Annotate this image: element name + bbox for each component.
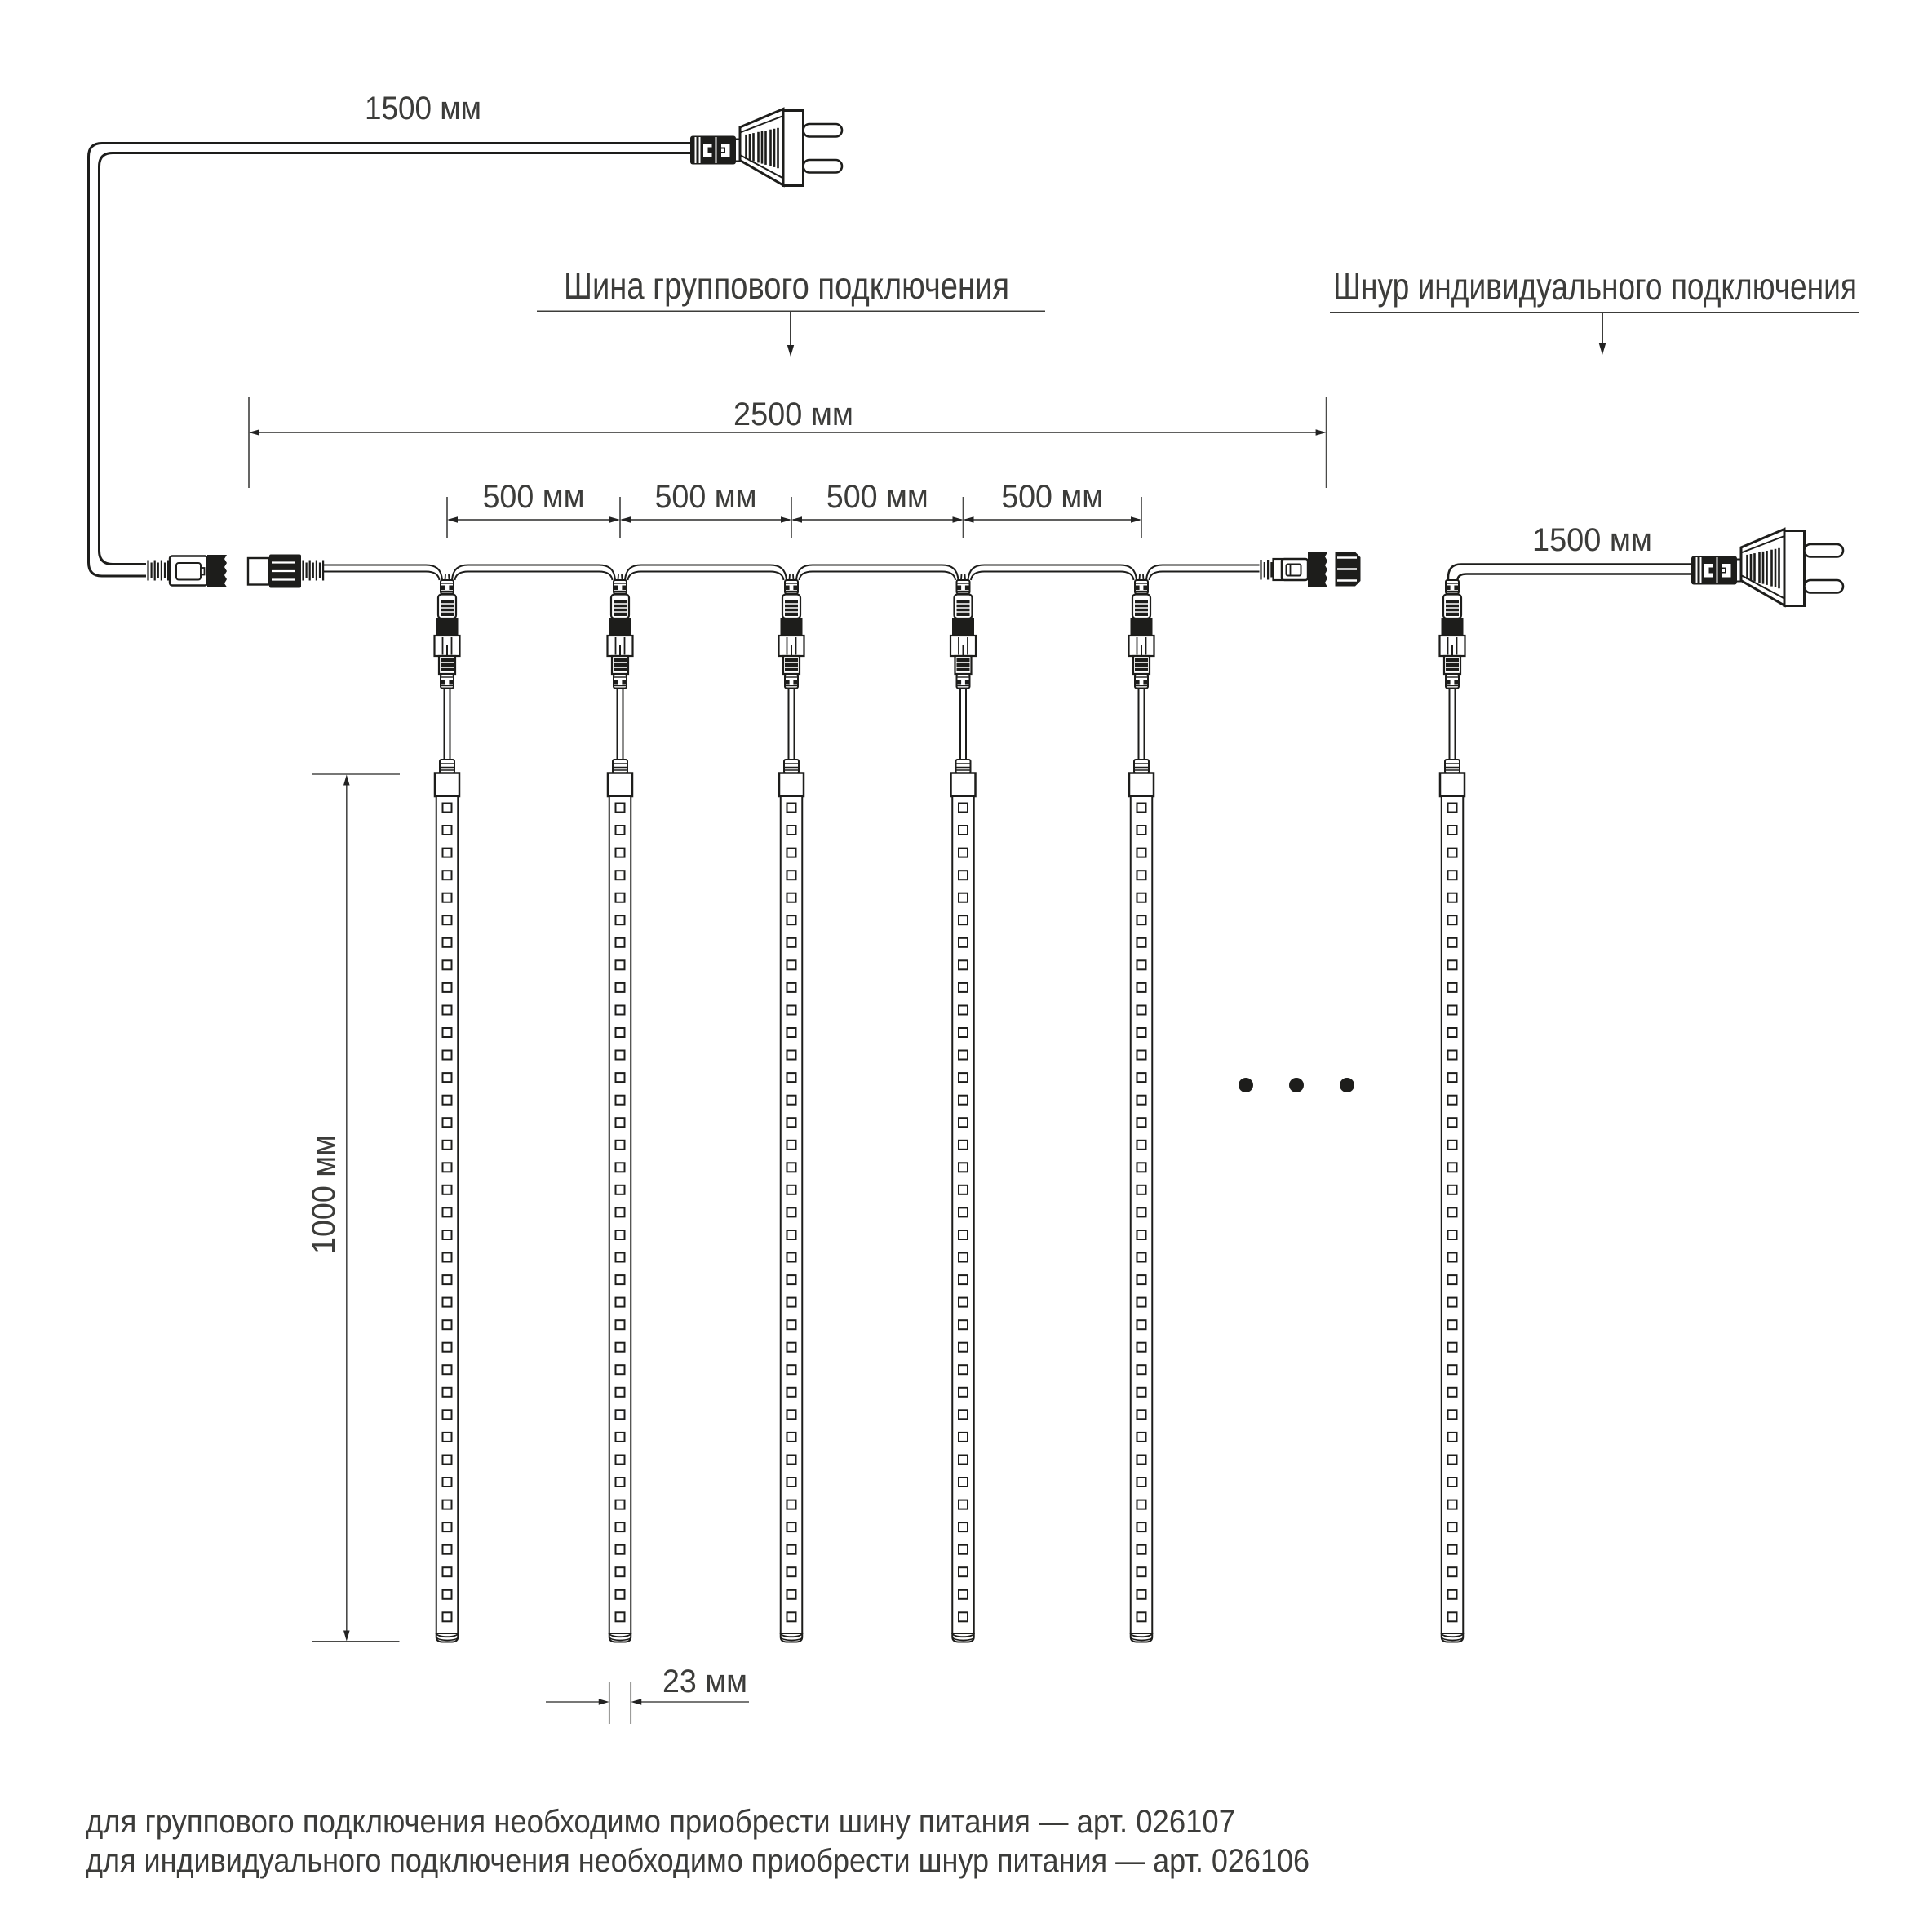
svg-text:500 мм: 500 мм: [1001, 479, 1103, 515]
svg-text:500 мм: 500 мм: [483, 479, 585, 515]
svg-text:500 мм: 500 мм: [655, 479, 757, 515]
svg-text:для индивидуального подключени: для индивидуального подключения необходи…: [86, 1843, 1309, 1879]
svg-text:1500 мм: 1500 мм: [365, 91, 481, 126]
svg-text:1000 мм: 1000 мм: [306, 1135, 342, 1254]
svg-text:2500 мм: 2500 мм: [733, 397, 853, 432]
svg-text:Шина группового подключения: Шина группового подключения: [564, 264, 1009, 307]
svg-text:500 мм: 500 мм: [826, 479, 928, 515]
svg-text:1500 мм: 1500 мм: [1532, 522, 1652, 558]
svg-text:Шнур индивидуального подключен: Шнур индивидуального подключения: [1333, 265, 1857, 308]
svg-text:для группового подключения нео: для группового подключения необходимо пр…: [86, 1804, 1235, 1840]
svg-text:23 мм: 23 мм: [662, 1664, 747, 1699]
